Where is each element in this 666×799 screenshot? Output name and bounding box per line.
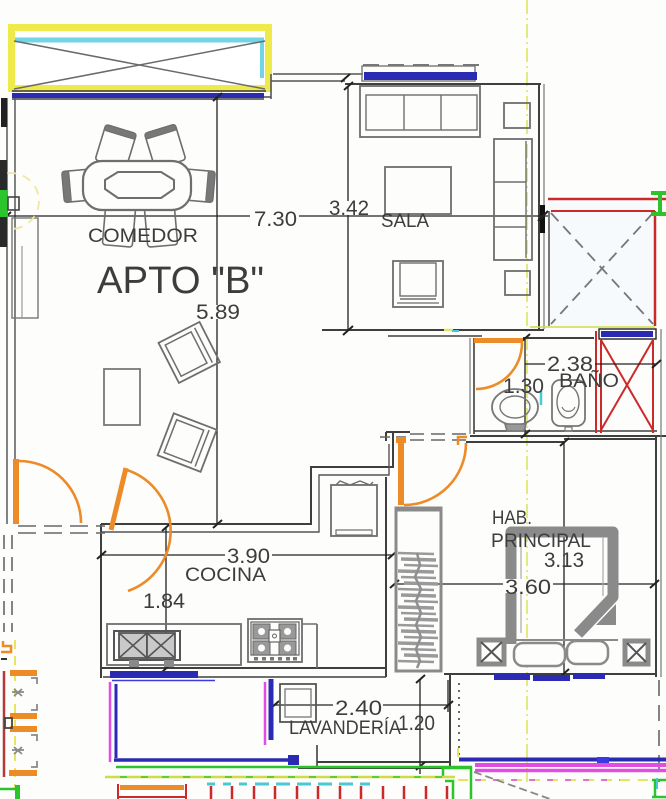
svg-text:LAVANDERÍA: LAVANDERÍA — [289, 718, 401, 739]
svg-text:3.42: 3.42 — [329, 197, 369, 220]
svg-text:PRINCIPAL: PRINCIPAL — [491, 531, 591, 552]
svg-text:APTO "B": APTO "B" — [97, 260, 264, 302]
svg-text:2.40: 2.40 — [335, 697, 382, 720]
svg-text:3.60: 3.60 — [505, 576, 551, 599]
svg-text:7.30: 7.30 — [254, 208, 297, 231]
svg-text:SALA: SALA — [381, 211, 429, 232]
svg-text:BAÑO: BAÑO — [559, 370, 619, 392]
svg-text:1.84: 1.84 — [143, 590, 185, 613]
svg-text:5.89: 5.89 — [196, 301, 240, 324]
svg-text:1.20: 1.20 — [398, 712, 435, 735]
svg-text:3.13: 3.13 — [544, 549, 584, 572]
svg-text:COCINA: COCINA — [185, 565, 266, 586]
svg-text:COMEDOR: COMEDOR — [88, 226, 198, 247]
svg-text:HAB.: HAB. — [492, 508, 532, 529]
svg-text:1.30: 1.30 — [503, 375, 544, 398]
